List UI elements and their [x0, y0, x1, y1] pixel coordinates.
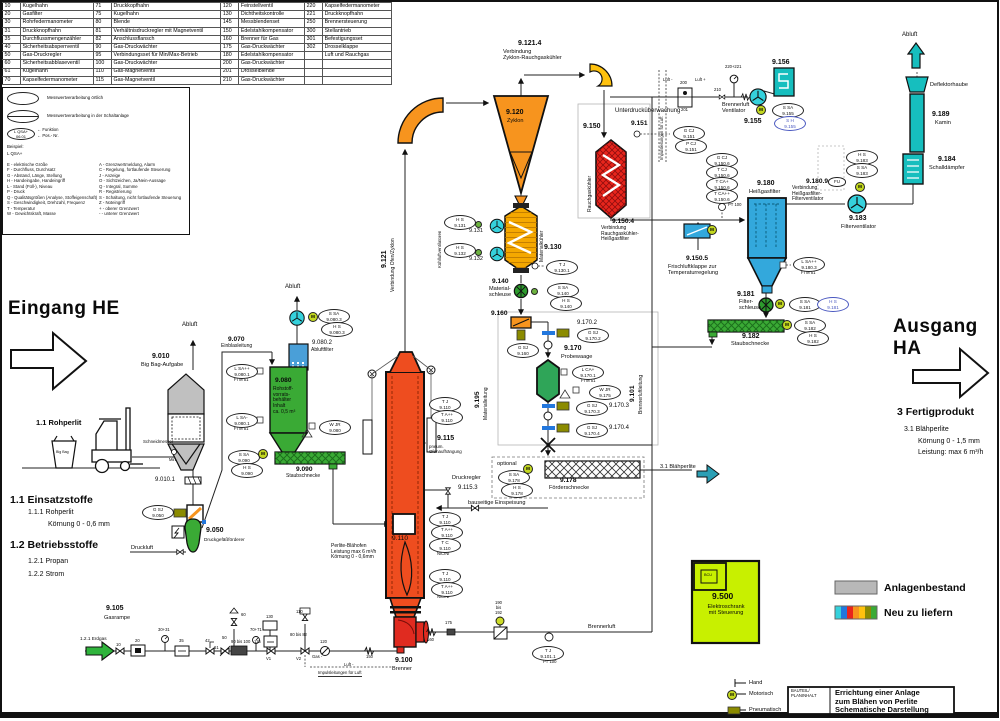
lbl-9150: 9.150 [583, 123, 601, 131]
lbl-pneum: pneum. Ofenaufhängung [429, 444, 462, 454]
bubble-9181b: H S9.181 [817, 297, 849, 312]
lbl-foerder: Förderschnecke [549, 485, 589, 491]
bubble-9183b: S SA9.183 [846, 163, 878, 178]
bubble-fu: FU [828, 177, 846, 187]
lbl-9195: 9.195 [474, 391, 482, 408]
lbl-9170-3: 9.170.3 [609, 403, 629, 410]
lbl-rohperlit: 1.1 Rohperlit [36, 419, 81, 428]
lbl-9010: 9.010 [152, 353, 170, 361]
lbl-g150: 150 [366, 655, 373, 660]
bubble-9110-2: T A++9.110 [431, 410, 463, 425]
lbl-bcu: BCU [704, 573, 712, 577]
lbl-9115: 9.115 [437, 435, 454, 443]
bubble-9140b: H S9.140 [550, 296, 582, 311]
lbl-druckgef: Druckgefäßförderer [204, 537, 245, 542]
bubble-9110-5: T C9.110 [429, 538, 461, 553]
flange-9170-3 [542, 402, 569, 420]
lbl-9131: 9.131 [469, 228, 483, 234]
lbl-kamin: Kamin [935, 120, 951, 126]
druckgefaessfoerderer-9050 [172, 519, 206, 552]
lbl-bl-vent: Brennerluft Ventilator [722, 102, 749, 115]
lbl-motorisch: Motorisch [749, 691, 773, 697]
foerderschnecke-9178 [545, 461, 640, 478]
lbl-staubschnecke1: Staubschnecke [286, 474, 320, 480]
abluftfilter-9080-2 [289, 344, 308, 370]
lbl-bigbag: Big Bag [56, 450, 69, 454]
bubble-9175: W JR9.175 [589, 385, 621, 400]
bubble-9170-2: G SJ9.170.2 [577, 328, 609, 343]
lbl-9121-4: 9.121.4 [518, 40, 541, 48]
lbl-brennerluftltg: Brennerluftleitung [639, 375, 645, 414]
lbl-9170-4: 9.170.4 [609, 425, 629, 432]
bubble-9170-4: G SJ9.170.4 [576, 423, 608, 438]
lbl-neu: Neu zu liefern [884, 608, 953, 620]
bubble-9080-1max: L SA++9.080.1 [226, 364, 258, 379]
lbl-9010-1: 9.010.1 [155, 477, 175, 484]
lbl-9121: 9.121 [381, 250, 389, 268]
lbl-9156: 9.156 [772, 59, 790, 67]
parts-row: 50Gas-Druckregler 95Verbindungsset für M… [3, 52, 392, 60]
bubble-9182b: H S9.182 [797, 331, 829, 346]
lbl-g220: 220+221 [725, 65, 741, 70]
druckregler-9115-3-valve [446, 488, 451, 494]
filterschleuse-9181 [759, 298, 773, 312]
lbl-filterschleuse: Filter- schleuse [739, 299, 761, 312]
bubble-9050: G SJ9.050 [142, 505, 174, 520]
parts-row: 61Kugelhahn 110Gas-Magnetventil 201Dross… [3, 68, 392, 76]
lbl-9105: 9.105 [106, 605, 124, 613]
lbl-g35: 35 [179, 639, 184, 644]
lbl-gasrampe: Gasrampe [104, 615, 130, 621]
lbl-koern06: Körnung 0 - 0,6 mm [48, 521, 110, 529]
status-dot-9132 [475, 249, 482, 256]
lbl-g190: 190 bis 192 [495, 601, 502, 615]
motor-badge-9155: M [756, 105, 766, 115]
legend-codes-left: E - elektrische GrößeF - Durchfluss, Dur… [7, 162, 97, 217]
bubble-9132: H S9.132 [444, 243, 476, 258]
lbl-frischluft: Frischluftklappe zur Temperaturregelung [668, 264, 718, 277]
legend-label-2: Messwertverarbeitung in der Schaltanlage [47, 113, 129, 118]
lbl-g10: 10 [116, 643, 121, 648]
legend-swatch-anlagen [835, 581, 877, 594]
bubble-9080-3b: H S9.080.3 [321, 322, 353, 337]
lbl-brennerluft: Brennerluft [588, 624, 615, 630]
gauge-220 [730, 75, 738, 83]
lbl-hgf: Heißgasfilter [749, 189, 780, 195]
lbl-9180: 9.180 [757, 180, 775, 188]
bubble-9101-1: T J9.101.1 [532, 646, 564, 661]
forklift [92, 408, 143, 473]
lbl-brenner: Brenner [392, 666, 412, 672]
lbl-abluft2: Abluft [285, 284, 300, 291]
legend-ellipse-panel [7, 110, 39, 123]
lbl-matkuehler: Materialkühler [540, 231, 546, 262]
lbl-9101: 9.101 [629, 385, 637, 402]
lbl-druckluft: Druckluft [131, 545, 153, 551]
lbl-matschleuse: Material- schleuse [489, 286, 511, 299]
lbl-ofenspecs: Perlite-Blähofen Leistung max 6 m³/h Kör… [331, 544, 376, 561]
legend-codes-right: A - Grenzwertmeldung, AlarmC - Regelung,… [99, 162, 181, 217]
lbl-ausgang: Ausgang HA [893, 316, 1000, 359]
frischluftklappe-9150-5 [684, 224, 710, 238]
lbl-g115: 115 [254, 640, 261, 645]
kamin-9189 [910, 94, 924, 152]
motor-badge-9090: M [258, 449, 268, 459]
bubble-9090b: H S9.090 [231, 463, 263, 478]
motor-legend-badge: M [727, 690, 737, 700]
lbl-g201: 201 [681, 108, 688, 113]
brenner-9100 [394, 617, 429, 653]
fan-9080-3 [290, 311, 304, 325]
lbl-g60: 60 [241, 613, 246, 618]
lbl-g50: 50 [222, 636, 227, 641]
motor-badge-9181: M [775, 299, 785, 309]
lbl-f31: 3.1 Blähperlite [904, 426, 949, 434]
parts-row: 31Druckknopfhahn 81Verhältnisdruckregler… [3, 27, 392, 35]
rauchgaskuehler-9150 [596, 140, 626, 218]
elektroschrank-9500 [692, 561, 759, 643]
lbl-9100: 9.100 [395, 657, 413, 665]
lbl-abluftfilter: Abluftfilter [311, 348, 333, 354]
lbl-9132: 9.132 [469, 256, 483, 262]
legend-swatch-neu [835, 606, 877, 619]
lbl-gasminus: Gas - [312, 655, 322, 660]
lbl-deflektor: Deflektorhaube [930, 82, 968, 88]
parts-row: 40Sicherheitsabsperrventil 90Gas-Druckwä… [3, 43, 392, 51]
lbl-9183: 9.183 [849, 215, 867, 223]
lbl-9178: 9.178 [560, 477, 577, 485]
probewaage-9170 [537, 360, 559, 402]
parts-table: 10Kugelhahn 71Druckkopfhahn 120Feinstell… [2, 2, 392, 85]
lbl-g8082: 80 bis 82 [290, 633, 307, 638]
lbl-9189: 9.189 [932, 111, 950, 119]
compensator-9010-1 [185, 477, 201, 484]
lbl-gV1: V1 [266, 657, 271, 662]
lbl-erdgas: 1.2.1 Erdgas [80, 636, 107, 641]
lbl-9151: 9.151 [631, 120, 648, 128]
lbl-9080-2: 9.080.2 [312, 340, 332, 347]
fan-9183 [848, 195, 866, 213]
erdgas-arrow [86, 642, 114, 660]
bubble-9160: G SJ9.160 [507, 343, 539, 358]
lbl-abluft1: Abluft [182, 322, 197, 329]
lbl-hand: Hand [749, 680, 762, 686]
lbl-imp: Impulsleitungen für Luft [318, 671, 362, 677]
lbl-tb-text: Errichtung einer Anlage zum Blähen von P… [835, 689, 929, 715]
bubble-9110-7: T A++9.110 [431, 582, 463, 597]
lbl-einsatz: 1.1 Einsatzstoffe [10, 495, 93, 507]
motor-badge-9182: M [782, 320, 792, 330]
fan-9155 [750, 89, 766, 105]
fan-9131 [490, 219, 504, 233]
legend-example-bubble: L QSA+06.01 [7, 128, 35, 140]
lbl-e111: 1.1.1 Rohperlit [28, 509, 74, 517]
lbl-g110: 110 [296, 610, 303, 615]
lbl-matleitung: Materialleitung [484, 387, 490, 420]
bubble-9170-1: L CA+9.170.1 [572, 365, 604, 380]
materialschleuse-9140 [514, 284, 527, 297]
sensor-pt100 [719, 204, 726, 211]
lbl-probewaage: Probewaage [561, 354, 592, 360]
lbl-g210: 210 [714, 88, 721, 93]
legend-beispiel: Beispiel: [7, 144, 24, 149]
lbl-eingang: Eingang HE [8, 298, 120, 320]
lbl-tb-small: BAUTEIL/ PLANINHALT [791, 689, 817, 699]
lbl-9080-text: Rohstoff- vorrats- behälter Inhalt ca. 0… [273, 387, 295, 415]
bubble-9155b: S H9.155 [774, 116, 806, 131]
lbl-impulsluft: Impulsleitungen für Luft [660, 116, 665, 160]
lbl-g7071: 70+71 [250, 628, 262, 633]
lbl-9155: 9.155 [744, 118, 762, 126]
fan-9132 [490, 247, 504, 261]
lbl-9110: 9.110 [392, 535, 408, 543]
lbl-zyklon: Zyklon [507, 118, 523, 124]
lbl-optional: optional [497, 461, 517, 467]
lbl-schneidmesser: Schneidmesser [143, 439, 173, 444]
lbl-kuehlluft: Kühlluftventilatoren [437, 231, 442, 268]
lbl-einblas: Einblasleitung [221, 344, 252, 350]
lbl-9500: 9.500 [712, 592, 733, 602]
heissgasfilter-9180 [748, 198, 786, 293]
lbl-fertig: 3 Fertigprodukt [897, 407, 974, 419]
parts-row: 30Rohrfedermanometer 80Blende 145Messble… [3, 19, 392, 27]
bend-9121 [398, 98, 443, 143]
lbl-verb-oz: Verbindung Ofen/Zyklon [391, 238, 397, 292]
bubble-9131: H S9.131 [444, 215, 476, 230]
lbl-g61: 61 [214, 646, 219, 651]
lbl-filterventilator: Filterventilator [841, 224, 876, 230]
deflektorhaube [906, 77, 928, 92]
lbl-verb-zr: Verbindung Zyklon-Rauchgaskühler [503, 49, 562, 62]
lbl-pneumatisch: Pneumatisch [749, 707, 781, 713]
schematic-sheet: 10Kugelhahn 71Druckkopfhahn 120Feinstell… [0, 0, 1000, 721]
lbl-g130: 130 [266, 615, 273, 620]
lbl-b121: 1.2.1 Propan [28, 558, 68, 566]
motor-badge-9080-3: M [308, 312, 318, 322]
lbl-luftp: Luft + [695, 78, 706, 83]
lbl-9050: 9.050 [206, 527, 224, 535]
lbl-9130: 9.130 [544, 244, 562, 252]
lbl-schalld: Schalldämpfer [929, 165, 965, 171]
bubble-9151b: P CJ9.151 [675, 139, 707, 154]
materialkuehler-9130 [505, 203, 538, 273]
flange-9170-4 [542, 424, 569, 432]
bubble-9178b: H S9.178 [501, 483, 533, 498]
parts-row: 10Kugelhahn 71Druckkopfhahn 120Feinstell… [3, 3, 392, 11]
lbl-staubschnecke2: Staubschnecke [731, 341, 769, 347]
lbl-luftm: Luft - [663, 78, 673, 83]
lbl-elektro: Elektroschrank mit Steuerung [695, 604, 757, 617]
lbl-rgk: Rauchgaskühler [588, 176, 594, 212]
lbl-verb-rh: Verbindung Rauchgaskühler- Heißgasfilter [601, 226, 639, 243]
sub-pt-2: PT 100 [728, 203, 741, 208]
lbl-9010-sub: Big Bag-Aufgabe [141, 362, 183, 368]
lbl-druckregler: Druckregler [452, 475, 481, 481]
abluft-arrow [908, 43, 924, 68]
status-dot-9131 [475, 221, 482, 228]
lbl-9160: 9.160 [491, 310, 508, 318]
lbl-9170: 9.170 [564, 345, 582, 353]
luftbox-200-201 [678, 88, 692, 107]
lbl-9140: 9.140 [492, 278, 509, 286]
lbl-anlagen: Anlagenbestand [884, 583, 966, 595]
lbl-b122: 1.2.2 Strom [28, 571, 64, 579]
lbl-verb-hf: Verbindung Heißgasfilter- Filterventilat… [792, 186, 823, 203]
lbl-9115-3: 9.115.3 [458, 485, 478, 492]
bubble-9080-w: W JR9.080 [319, 420, 351, 435]
lbl-g90: 90 bis 100 [231, 640, 250, 645]
status-dot-9140 [531, 288, 538, 295]
bubble-9170-3: G SJ9.170.3 [576, 401, 608, 416]
lbl-min: Min [169, 458, 176, 463]
verteiler-9160 [511, 317, 531, 340]
motor-badge-9183: M [855, 182, 865, 192]
legend-ellipse-local [7, 92, 39, 105]
lbl-9120: 9.120 [506, 109, 524, 117]
druckluft-valve [177, 550, 183, 555]
lbl-9170-2: 9.170.2 [577, 320, 597, 327]
bubble-9180-3: L SA++9.180.3 [793, 257, 825, 272]
lbl-g175: 175 [445, 621, 452, 626]
lbl-bauseitig: bauseitige Einspeisung [468, 500, 526, 506]
bubble-9150-6d: T CA++9.150.6 [706, 189, 738, 204]
lbl-9150-5: 9.150.5 [686, 255, 708, 263]
parts-row: 70Kapselfedermanometer 115Gas-Magnetvent… [3, 76, 392, 84]
valve-210 [719, 95, 725, 99]
lbl-g20: 20 [135, 639, 140, 644]
sensor-9151 [634, 131, 640, 137]
lbl-koern15: Körnung 0 - 1,5 mm [918, 438, 980, 446]
schalldaempfer-9184 [903, 154, 923, 184]
lbl-g42: 42 [205, 639, 210, 644]
lbl-9184: 9.184 [938, 156, 956, 164]
legend-posnr: ← Pos.- Nr. [37, 134, 59, 139]
motor-badge-9150-5: M [707, 225, 717, 235]
lbl-g3031: 30+31 [158, 628, 170, 633]
bigbag-aufgabe-9010 [168, 374, 204, 470]
legend-label-1: Messwertverarbeitung örtlich [47, 95, 103, 100]
bubble-9080-1min: L SA-9.080.1 [226, 413, 258, 428]
bubble-9130-1: T J9.130.1 [546, 260, 578, 275]
lbl-abluft3: Abluft [902, 32, 917, 39]
lbl-g200: 200 [680, 81, 687, 86]
lbl-g120: 120 [320, 640, 327, 645]
bend-9121-4 [590, 64, 612, 86]
legend-example2: L QSA+ [7, 151, 22, 156]
lbl-unterdruck: Unterdrucküberwachung [615, 108, 680, 115]
lbl-9182: 9.182 [742, 333, 760, 341]
lbl-luftminus: Luft - [344, 663, 354, 668]
parts-row: 20Gasfilter 75Kugelhahn 130Dichtheitskon… [3, 11, 392, 19]
blaehperlite-arrow [697, 465, 719, 483]
lbl-9080: 9.080 [275, 377, 292, 385]
lbl-g160: 160 [427, 638, 434, 643]
parts-row: 35Durchflussmengenzähler 82Anschlussflan… [3, 35, 392, 43]
parts-row: 60Sicherheitsabblaseventil 100Gas-Druckw… [3, 60, 392, 68]
lbl-blaeh-out: 3.1 Blähperlite [660, 464, 696, 470]
ofen-9110 [363, 352, 436, 617]
lbl-leist6: Leistung: max 6 m³/h [918, 449, 983, 457]
lbl-gV2: V2 [296, 657, 301, 662]
coil-9156 [774, 68, 794, 96]
symbol-legend: Messwertverarbeitung örtlich Messwertver… [2, 87, 190, 235]
lbl-betrieb: 1.2 Betriebsstoffe [10, 540, 98, 552]
lbl-9181: 9.181 [737, 291, 755, 299]
eingang-arrow [11, 333, 86, 389]
motor-badge-9178: M [523, 464, 533, 474]
